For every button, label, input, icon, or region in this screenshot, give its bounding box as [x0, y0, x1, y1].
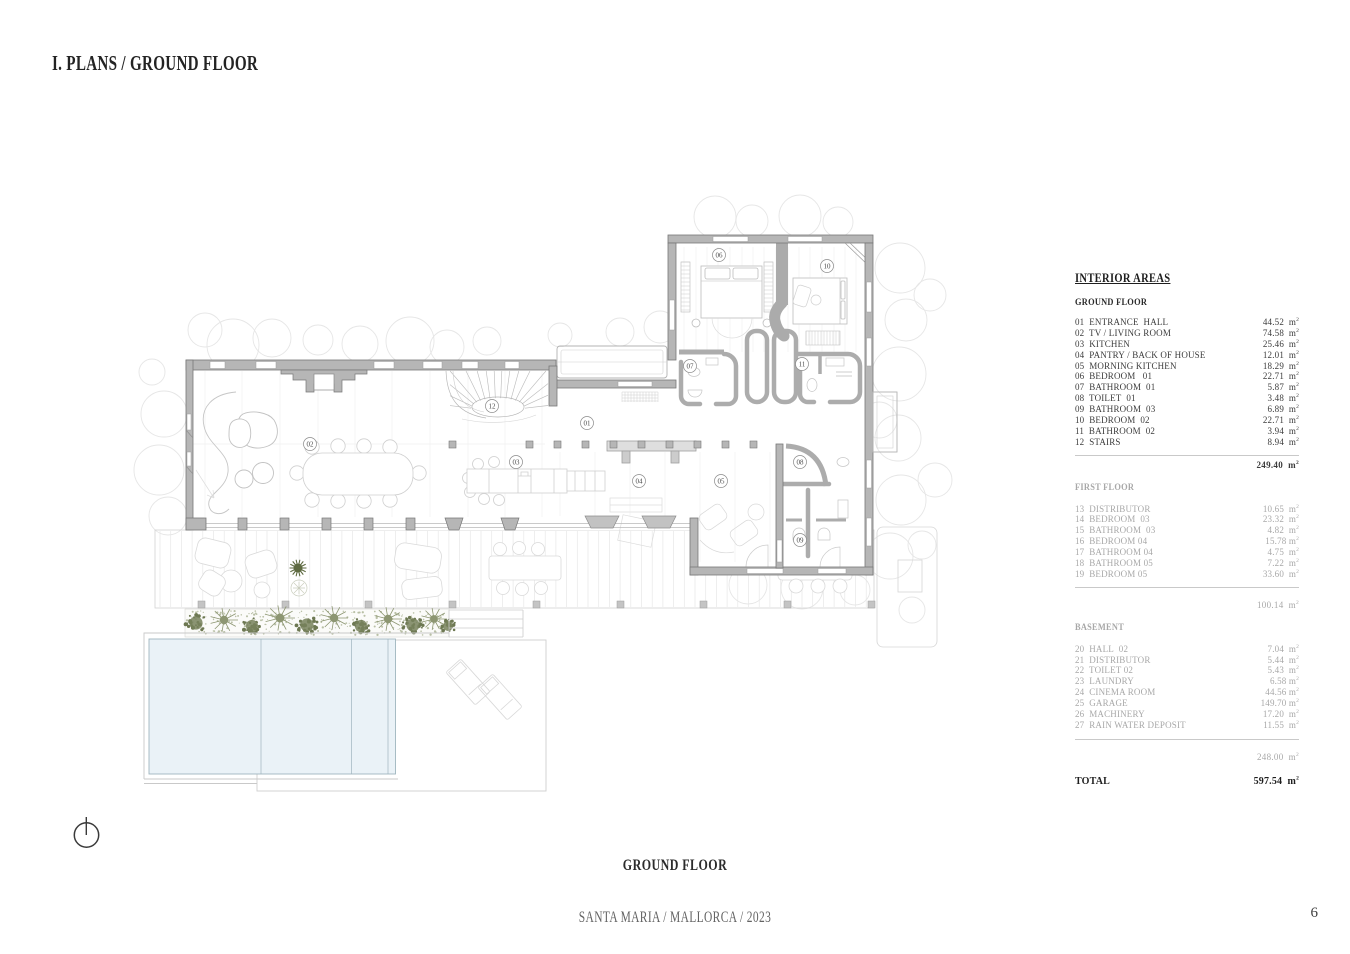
svg-text:03: 03 [513, 458, 521, 466]
svg-text:05: 05 [718, 477, 726, 485]
svg-text:06: 06 [716, 251, 724, 259]
svg-text:11: 11 [799, 360, 806, 368]
svg-text:12: 12 [489, 402, 497, 410]
svg-text:10: 10 [824, 262, 832, 270]
svg-text:04: 04 [636, 477, 644, 485]
svg-text:01: 01 [584, 419, 592, 427]
svg-text:07: 07 [687, 362, 695, 370]
svg-text:02: 02 [307, 440, 315, 448]
svg-text:08: 08 [797, 458, 805, 466]
svg-text:09: 09 [797, 536, 805, 544]
